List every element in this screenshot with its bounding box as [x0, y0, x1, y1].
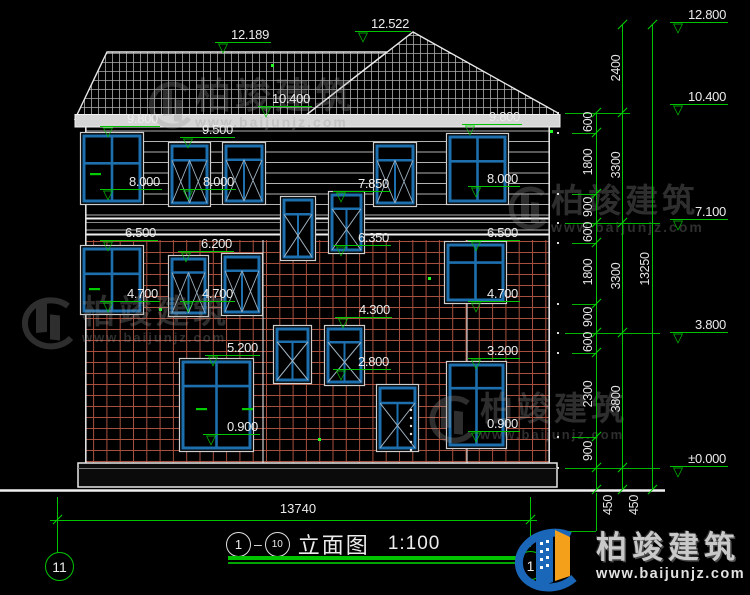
elevation-drawing: 柏竣建筑 www.baijunjz.com 柏竣建筑 www.baijunjz.…: [0, 0, 750, 595]
witness-dot: [557, 467, 559, 469]
level-triangle-icon: ▽: [206, 434, 216, 445]
chain-dimension-value: 900: [581, 416, 595, 486]
extension-line: [565, 333, 660, 334]
level-marker: 12.522▽: [355, 17, 411, 32]
level-triangle-icon: ▽: [673, 22, 683, 33]
witness-dot: [557, 332, 559, 334]
level-marker: 6.200▽: [178, 237, 234, 252]
level-triangle-icon: ▽: [103, 126, 113, 137]
level-triangle-icon: ▽: [471, 431, 481, 442]
level-triangle-icon: ▽: [471, 240, 481, 251]
level-triangle-icon: ▽: [673, 466, 683, 477]
level-triangle-icon: ▽: [181, 251, 191, 262]
chain-dimension-value: 2400: [609, 33, 623, 103]
level-triangle-icon: ▽: [465, 124, 475, 135]
level-marker: 6.350▽: [333, 231, 391, 246]
level-marker: 2.800▽: [333, 355, 391, 370]
witness-dot: [557, 303, 559, 305]
level-marker: 12.800▽: [670, 8, 728, 23]
level-marker: 3.800▽: [670, 318, 728, 333]
title-axis-from-bubble: 1: [226, 532, 251, 557]
level-triangle-icon: ▽: [471, 301, 481, 312]
level-triangle-icon: ▽: [183, 189, 193, 200]
level-marker: 8.000▽: [468, 172, 520, 187]
chain-dimension-value: 3300: [609, 130, 623, 200]
level-marker: 9.800▽: [100, 112, 160, 127]
brand-name: 柏竣建筑: [596, 532, 745, 564]
level-triangle-icon: ▽: [208, 355, 218, 366]
level-marker: 4.700▽: [100, 287, 160, 302]
level-marker: 0.900▽: [203, 420, 260, 435]
title-dash: –: [254, 536, 262, 552]
level-marker: 4.300▽: [335, 303, 392, 318]
level-marker: 0.900▽: [468, 417, 520, 432]
level-marker: 8.000▽: [180, 175, 236, 190]
level-triangle-icon: ▽: [103, 301, 113, 312]
title-axis-to-bubble: 10: [265, 532, 290, 557]
level-triangle-icon: ▽: [673, 104, 683, 115]
bottom-dimension-line: [50, 520, 537, 521]
level-triangle-icon: ▽: [471, 186, 481, 197]
chain-dimension-value: 3800: [609, 364, 623, 434]
watermark-logo-icon: [8, 294, 82, 350]
level-marker: 4.700▽: [468, 287, 520, 302]
witness-dot: [557, 222, 559, 224]
level-marker: 6.500▽: [468, 226, 520, 241]
watermark-logo-icon: [503, 183, 551, 231]
extension-line: [565, 223, 660, 224]
brand-url: www.baijunjz.com: [596, 566, 745, 582]
level-marker: ±0.000▽: [670, 452, 728, 467]
brand-logo: 柏竣建筑 www.baijunjz.com: [500, 520, 745, 594]
level-marker: 10.400▽: [670, 90, 728, 105]
level-marker: 8.000▽: [100, 175, 162, 190]
level-marker: 9.800▽: [462, 110, 522, 125]
witness-dot: [557, 112, 559, 114]
level-marker: 12.189▽: [215, 28, 271, 43]
level-triangle-icon: ▽: [673, 219, 683, 230]
level-triangle-icon: ▽: [336, 245, 346, 256]
level-triangle-icon: ▽: [336, 191, 346, 202]
level-marker: 4.700▽: [180, 287, 235, 302]
level-marker: 10.400▽: [258, 92, 312, 107]
witness-dot: [557, 132, 559, 134]
brand-logo-text: 柏竣建筑 www.baijunjz.com: [596, 532, 745, 582]
level-triangle-icon: ▽: [358, 31, 368, 42]
level-triangle-icon: ▽: [218, 42, 228, 53]
chain-dimension-value: 3300: [609, 241, 623, 311]
brand-logo-icon: [500, 520, 592, 594]
watermark: 柏竣建筑 www.baijunjz.com: [8, 294, 230, 350]
axis-bubble-left: 11: [45, 552, 74, 581]
title-scale: 1:100: [388, 533, 441, 555]
overall-width-dimension: 13740: [268, 501, 328, 516]
level-marker: 7.100▽: [670, 205, 728, 220]
title-underline: [228, 556, 520, 560]
level-marker: 5.200▽: [205, 341, 260, 356]
level-triangle-icon: ▽: [338, 317, 348, 328]
axis-leader-line: [57, 497, 58, 553]
level-triangle-icon: ▽: [183, 137, 193, 148]
witness-dot: [557, 242, 559, 244]
level-triangle-icon: ▽: [261, 106, 271, 117]
level-triangle-icon: ▽: [103, 189, 113, 200]
level-triangle-icon: ▽: [183, 301, 193, 312]
level-marker: 6.500▽: [100, 226, 158, 241]
level-triangle-icon: ▽: [673, 332, 683, 343]
watermark: 柏竣建筑 www.baijunjz.com: [143, 78, 355, 130]
witness-dot: [557, 193, 559, 195]
level-marker: 3.200▽: [468, 344, 520, 359]
level-triangle-icon: ▽: [471, 358, 481, 369]
witness-dot: [557, 436, 559, 438]
dimension-chain-line: [652, 25, 653, 490]
level-marker: 9.500▽: [180, 123, 235, 138]
level-marker: 7.850▽: [333, 177, 391, 192]
witness-dot: [557, 352, 559, 354]
extension-line: [565, 468, 660, 469]
chain-dimension-value: 13250: [638, 234, 652, 304]
level-triangle-icon: ▽: [103, 240, 113, 251]
level-triangle-icon: ▽: [336, 369, 346, 380]
title-underline: [228, 562, 520, 564]
